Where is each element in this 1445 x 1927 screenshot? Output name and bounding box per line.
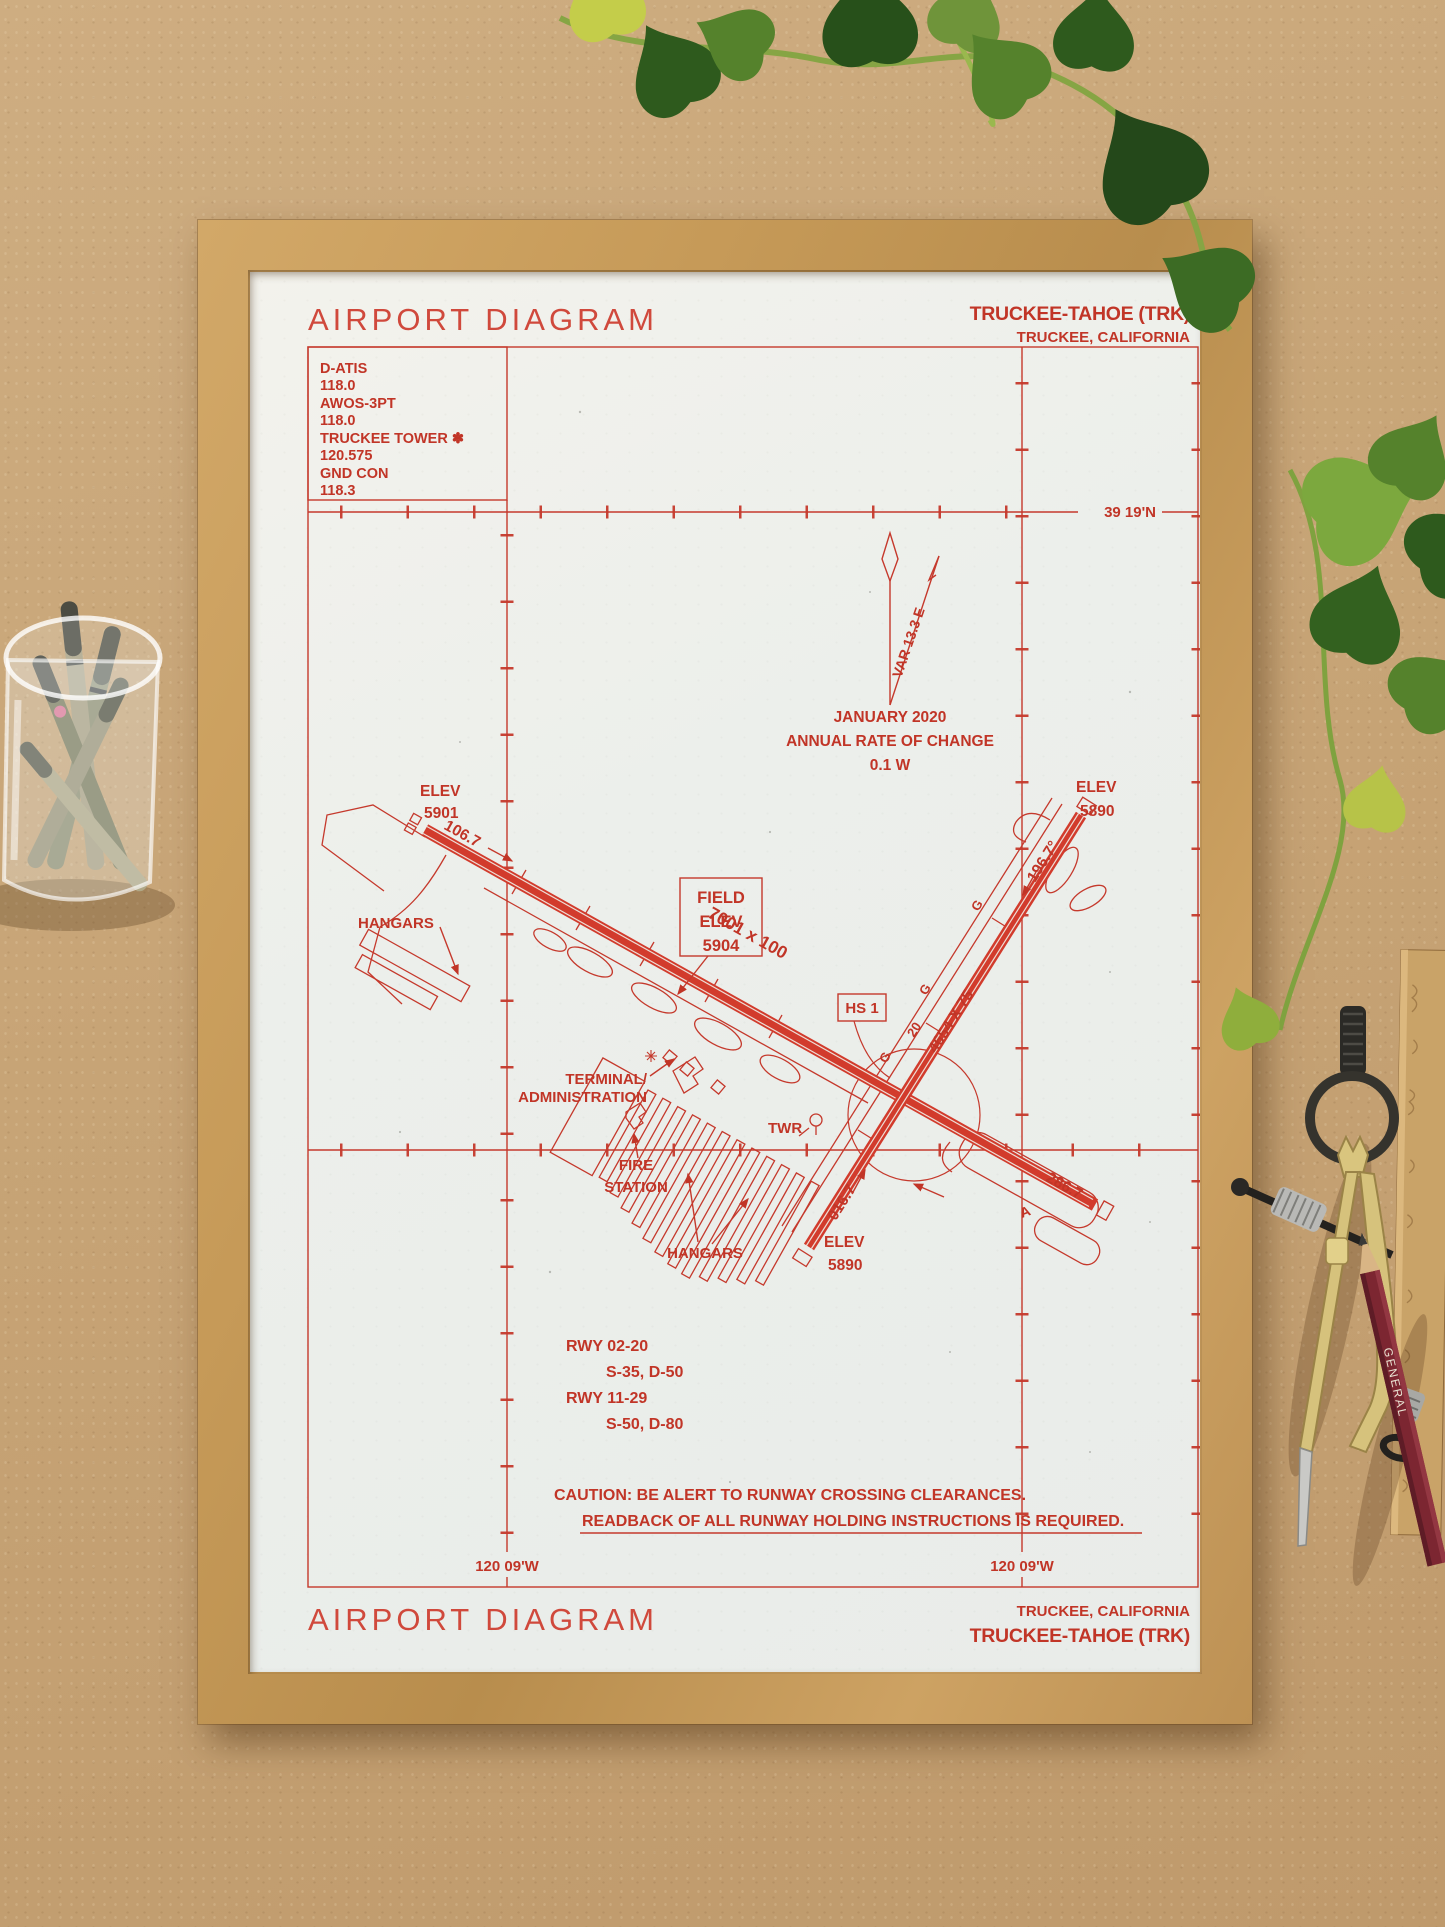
svg-text:S-35, D-50: S-35, D-50 bbox=[606, 1364, 683, 1381]
svg-text:5904: 5904 bbox=[703, 937, 741, 955]
svg-text:RWY 11-29: RWY 11-29 bbox=[566, 1390, 647, 1407]
variation-label: VAR 13.3 E bbox=[889, 605, 928, 679]
runway-11-29 bbox=[404, 813, 1113, 1220]
elev-rwy20: ELEV 5890 bbox=[1076, 779, 1117, 820]
svg-text:ADMINISTRATION: ADMINISTRATION bbox=[518, 1089, 647, 1106]
terminal-label: TERMINAL/ ADMINISTRATION bbox=[518, 1071, 648, 1106]
svg-text:JANUARY 2020: JANUARY 2020 bbox=[834, 709, 947, 726]
picture-frame: AIRPORT DIAGRAM AIRPORT DIAGRAM TRUCKEE-… bbox=[198, 220, 1252, 1724]
svg-text:5890: 5890 bbox=[828, 1257, 862, 1274]
longitude-label-left: 120 09'W bbox=[475, 1558, 539, 1575]
graticule bbox=[308, 347, 1198, 1587]
svg-text:HS 1: HS 1 bbox=[845, 1000, 878, 1017]
star-marker-icon bbox=[645, 1050, 657, 1062]
longitude-label-right: 120 09'W bbox=[990, 1558, 1054, 1575]
svg-text:5901: 5901 bbox=[424, 805, 459, 822]
taxiway-g-label-1: G bbox=[916, 981, 934, 998]
svg-text:TRUCKEE TOWER ✽: TRUCKEE TOWER ✽ bbox=[320, 431, 464, 447]
hot-spot-box: HS 1 bbox=[838, 994, 886, 1021]
airport-diagram: AIRPORT DIAGRAM AIRPORT DIAGRAM TRUCKEE-… bbox=[250, 272, 1200, 1672]
svg-text:AWOS-3PT: AWOS-3PT bbox=[320, 396, 396, 412]
svg-text:5890: 5890 bbox=[1080, 803, 1114, 820]
hold-20-label: 20 bbox=[904, 1019, 924, 1039]
svg-text:GND CON: GND CON bbox=[320, 466, 388, 482]
svg-text:CAUTION: BE ALERT TO RUNWAY CR: CAUTION: BE ALERT TO RUNWAY CROSSING CLE… bbox=[554, 1487, 1026, 1504]
heading-29-label: 286.7 bbox=[1043, 1169, 1085, 1203]
footer-airport-name: TRUCKEE-TAHOE (TRK) bbox=[970, 1625, 1190, 1647]
svg-text:118.0: 118.0 bbox=[320, 413, 356, 429]
svg-text:118.0: 118.0 bbox=[320, 378, 356, 394]
airport-location: TRUCKEE, CALIFORNIA bbox=[1017, 329, 1190, 346]
airport-name: TRUCKEE-TAHOE (TRK) bbox=[970, 303, 1190, 325]
svg-text:ELEV: ELEV bbox=[824, 1234, 865, 1251]
latitude-label: 39 19'N bbox=[1104, 504, 1156, 521]
footer-location: TRUCKEE, CALIFORNIA bbox=[1017, 1603, 1190, 1620]
svg-text:RWY 02-20: RWY 02-20 bbox=[566, 1338, 648, 1355]
svg-text:ELEV: ELEV bbox=[1076, 779, 1117, 796]
runway-data-block: RWY 02-20 S-35, D-50 RWY 11-29 S-50, D-8… bbox=[566, 1338, 683, 1433]
elev-rwy11: ELEV 5901 bbox=[420, 783, 461, 822]
svg-text:STATION: STATION bbox=[604, 1179, 668, 1196]
tower-label: TWR bbox=[768, 1120, 802, 1137]
svg-text:D-ATIS: D-ATIS bbox=[320, 361, 368, 377]
tower-symbol-icon bbox=[810, 1114, 822, 1126]
hangars-west-label: HANGARS bbox=[358, 915, 434, 932]
svg-text:FIELD: FIELD bbox=[697, 889, 745, 907]
page-title: AIRPORT DIAGRAM bbox=[308, 302, 658, 337]
airport-diagram-poster: AIRPORT DIAGRAM AIRPORT DIAGRAM TRUCKEE-… bbox=[250, 272, 1200, 1672]
comm-box: D-ATIS 118.0 AWOS-3PT 118.0 TRUCKEE TOWE… bbox=[320, 361, 464, 499]
svg-text:120.575: 120.575 bbox=[320, 448, 372, 464]
taxiway-linework bbox=[322, 798, 1124, 1311]
taxiway-a-label: A bbox=[1018, 1202, 1033, 1220]
svg-text:TERMINAL/: TERMINAL/ bbox=[565, 1071, 647, 1088]
svg-text:118.3: 118.3 bbox=[320, 483, 356, 499]
hangars-south-label: HANGARS bbox=[667, 1245, 743, 1262]
svg-text:ELEV: ELEV bbox=[699, 913, 742, 931]
taxiway-g-label-3: G bbox=[968, 897, 986, 914]
taxiway-g-label-2: G bbox=[876, 1049, 894, 1066]
footer-title: AIRPORT DIAGRAM bbox=[308, 1602, 658, 1637]
svg-text:ANNUAL RATE OF CHANGE: ANNUAL RATE OF CHANGE bbox=[786, 733, 994, 750]
svg-text:S-50, D-80: S-50, D-80 bbox=[606, 1416, 683, 1433]
photo-scene: AIRPORT DIAGRAM AIRPORT DIAGRAM TRUCKEE-… bbox=[0, 0, 1445, 1927]
elev-rwy02: ELEV 5890 bbox=[824, 1234, 865, 1274]
svg-text:0.1 W: 0.1 W bbox=[870, 757, 911, 774]
annual-rate-block: JANUARY 2020 ANNUAL RATE OF CHANGE 0.1 W bbox=[786, 709, 994, 774]
svg-text:FIRE: FIRE bbox=[619, 1157, 653, 1174]
rwy-02-20-size-label: 4654 X 75 bbox=[925, 987, 977, 1056]
svg-text:ELEV: ELEV bbox=[420, 783, 461, 800]
caution-note: CAUTION: BE ALERT TO RUNWAY CROSSING CLE… bbox=[554, 1487, 1124, 1530]
svg-text:READBACK OF ALL RUNWAY HOLDING: READBACK OF ALL RUNWAY HOLDING INSTRUCTI… bbox=[582, 1513, 1124, 1530]
